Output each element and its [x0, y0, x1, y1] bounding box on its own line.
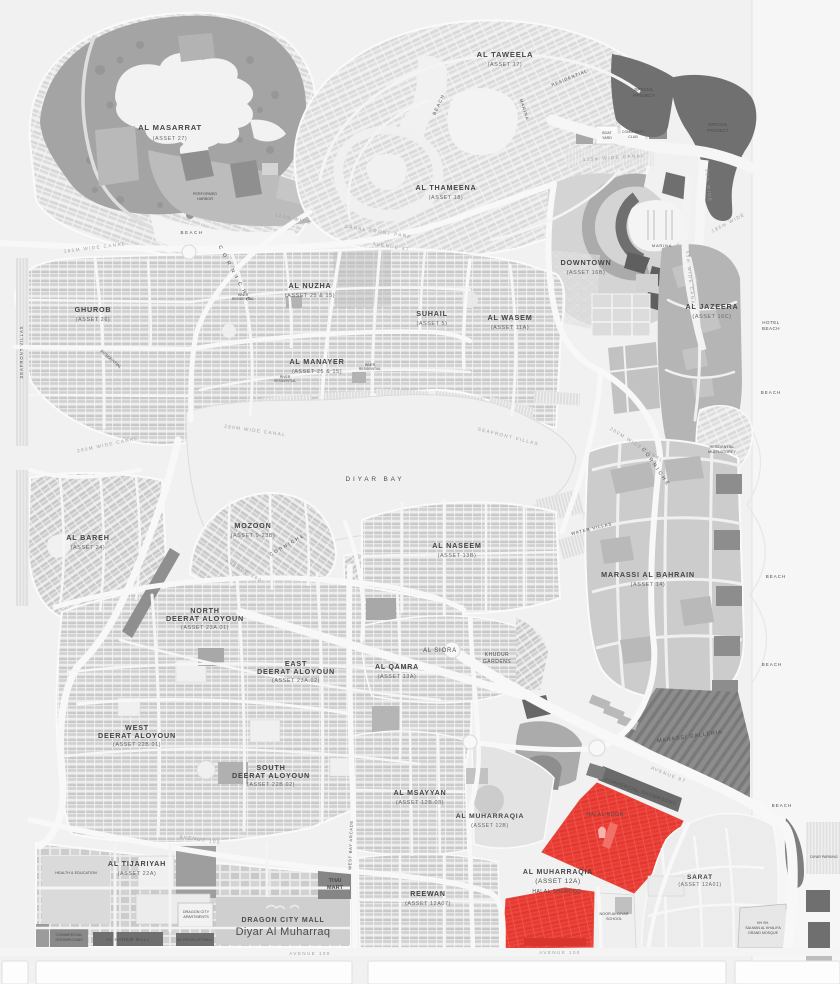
- svg-text:PROJECT: PROJECT: [633, 93, 655, 98]
- svg-text:MULTI-STOREY: MULTI-STOREY: [708, 450, 736, 454]
- svg-text:BEACH: BEACH: [766, 574, 787, 579]
- svg-text:AL MANAYER: AL MANAYER: [289, 357, 344, 366]
- svg-text:HOTEL: HOTEL: [762, 320, 780, 325]
- svg-text:AL MASARRAT: AL MASARRAT: [138, 123, 202, 132]
- svg-text:AL HAREM MALL: AL HAREM MALL: [106, 937, 150, 942]
- svg-text:(ASSET 18): (ASSET 18): [429, 195, 464, 201]
- svg-text:HH SH.: HH SH.: [757, 921, 769, 925]
- svg-text:COMMUNITY: COMMUNITY: [622, 130, 645, 134]
- svg-text:DIYAR BAY: DIYAR BAY: [346, 476, 405, 483]
- svg-text:PROJECT: PROJECT: [707, 128, 729, 133]
- svg-text:AL PEHALUP MALL: AL PEHALUP MALL: [177, 937, 214, 942]
- svg-text:HEALTH & EDUCATION: HEALTH & EDUCATION: [55, 871, 97, 875]
- svg-text:(ASSET 13B): (ASSET 13B): [438, 553, 477, 559]
- svg-text:SARAT: SARAT: [687, 874, 713, 881]
- svg-text:CLUB: CLUB: [628, 135, 638, 139]
- svg-text:AL MSAYYAN: AL MSAYYAN: [394, 790, 447, 797]
- svg-text:(ASSET 27): (ASSET 27): [153, 136, 188, 142]
- svg-text:SUHAIL: SUHAIL: [416, 309, 448, 318]
- svg-text:DRAGON CITY: DRAGON CITY: [183, 910, 210, 914]
- svg-text:THAI: THAI: [329, 878, 342, 884]
- svg-text:(ASSET 22B.02): (ASSET 22B.02): [247, 782, 295, 788]
- svg-text:(ASSET 12B): (ASSET 12B): [471, 823, 509, 829]
- svg-text:DEERAT ALOYOUN: DEERAT ALOYOUN: [98, 731, 176, 740]
- svg-text:REEWAN: REEWAN: [410, 891, 446, 898]
- svg-text:(ASSET 16C): (ASSET 16C): [692, 314, 731, 320]
- svg-text:MARINA: MARINA: [652, 243, 672, 248]
- svg-text:DEERAT ALOYOUN: DEERAT ALOYOUN: [166, 614, 244, 623]
- svg-text:AL THAMEENA: AL THAMEENA: [416, 183, 477, 192]
- svg-text:SCHOOL: SCHOOL: [606, 917, 622, 921]
- svg-text:(ASSET 17): (ASSET 17): [488, 62, 523, 68]
- svg-text:(ASSET 5): (ASSET 5): [416, 321, 447, 327]
- svg-text:SPECIAL: SPECIAL: [634, 87, 654, 92]
- svg-text:(ASSET 13A): (ASSET 13A): [378, 674, 417, 680]
- svg-text:AL BAREH: AL BAREH: [66, 533, 109, 542]
- svg-text:AL MUHARRAQIA: AL MUHARRAQIA: [456, 813, 524, 820]
- svg-text:AL QAMRA: AL QAMRA: [375, 664, 419, 671]
- svg-text:RESIDENTIAL: RESIDENTIAL: [274, 379, 296, 383]
- svg-text:BEACH: BEACH: [762, 662, 783, 667]
- svg-text:(ASSET 25 & 15): (ASSET 25 & 15): [285, 293, 335, 299]
- svg-text:(ASSET 12B.08): (ASSET 12B.08): [396, 800, 444, 806]
- svg-text:(ASSET 14): (ASSET 14): [631, 582, 666, 588]
- svg-text:DEERAT ALOYOUN: DEERAT ALOYOUN: [232, 771, 310, 780]
- svg-text:HAI AL SHEROOQ: HAI AL SHEROOQ: [532, 889, 581, 895]
- svg-text:(ASSET 12A07): (ASSET 12A07): [405, 901, 451, 907]
- svg-text:GRAND MOSQUE: GRAND MOSQUE: [748, 931, 779, 935]
- svg-text:BEACH: BEACH: [772, 803, 793, 808]
- svg-text:KHUDUR: KHUDUR: [485, 652, 509, 658]
- svg-text:(ASSET 23A.01): (ASSET 23A.01): [181, 625, 229, 631]
- svg-text:YARD: YARD: [602, 136, 612, 140]
- svg-text:MART: MART: [327, 885, 344, 891]
- svg-text:BEACH: BEACH: [180, 230, 203, 235]
- svg-text:DOWNTOWN: DOWNTOWN: [561, 258, 612, 267]
- svg-text:GARDENS: GARDENS: [483, 659, 511, 665]
- svg-text:(ASSET 24): (ASSET 24): [71, 545, 106, 551]
- svg-text:(ASSET 25 & 15): (ASSET 25 & 15): [292, 369, 342, 375]
- svg-text:(ASSET 22A): (ASSET 22A): [118, 871, 157, 877]
- svg-text:(ASSET 26): (ASSET 26): [76, 317, 111, 323]
- svg-text:(ASSET 23A.02): (ASSET 23A.02): [272, 678, 320, 684]
- svg-text:MARASSI AL BAHRAIN: MARASSI AL BAHRAIN: [601, 570, 695, 579]
- svg-text:BEACH: BEACH: [761, 390, 782, 395]
- svg-text:AL NASEEM: AL NASEEM: [432, 541, 481, 550]
- svg-text:(ASSET 9-23B): (ASSET 9-23B): [231, 533, 276, 539]
- svg-text:AL TIJARIYAH: AL TIJARIYAH: [108, 859, 166, 868]
- svg-text:AL NUZHA: AL NUZHA: [288, 281, 331, 290]
- svg-text:SPECIAL: SPECIAL: [708, 122, 728, 127]
- svg-text:RESIDENTIAL: RESIDENTIAL: [232, 297, 254, 301]
- svg-text:(ASSET 12A): (ASSET 12A): [535, 878, 581, 885]
- svg-text:AL TAWEELA: AL TAWEELA: [477, 50, 534, 59]
- svg-text:AL SIORA: AL SIORA: [423, 648, 457, 654]
- svg-text:AVENUE 100: AVENUE 100: [289, 951, 331, 956]
- svg-text:APARTMENTS: APARTMENTS: [183, 915, 209, 919]
- svg-text:(ASSET 16B): (ASSET 16B): [567, 270, 606, 276]
- svg-text:DIYAR PARKING: DIYAR PARKING: [810, 855, 838, 859]
- svg-text:AL MUHARRAQIA: AL MUHARRAQIA: [523, 869, 593, 876]
- svg-text:GHUROB: GHUROB: [75, 305, 112, 314]
- svg-text:DRAGON CITY MALL: DRAGON CITY MALL: [241, 917, 324, 924]
- svg-text:Diyar Al Muharraq: Diyar Al Muharraq: [236, 926, 331, 938]
- svg-text:DEERAT ALOYOUN: DEERAT ALOYOUN: [257, 667, 335, 676]
- svg-text:BOAT: BOAT: [602, 131, 612, 135]
- svg-text:(ASSET 12A01): (ASSET 12A01): [678, 882, 721, 888]
- svg-text:SHOWROOMS: SHOWROOMS: [55, 937, 83, 942]
- svg-text:RESIDENTIAL: RESIDENTIAL: [359, 367, 381, 371]
- svg-text:AL WASEM: AL WASEM: [487, 313, 532, 322]
- svg-text:HARBOR: HARBOR: [197, 197, 214, 201]
- svg-text:AVENUE 100: AVENUE 100: [539, 950, 581, 955]
- svg-text:(ASSET 11A): (ASSET 11A): [491, 325, 529, 331]
- svg-text:SEAFRONT VILLAS: SEAFRONT VILLAS: [19, 325, 24, 378]
- svg-text:MOZOON: MOZOON: [234, 521, 271, 530]
- svg-text:BEACH: BEACH: [762, 326, 780, 331]
- svg-text:HAI AL NOOR: HAI AL NOOR: [586, 812, 623, 818]
- svg-text:SALMAN AL KHALIFA: SALMAN AL KHALIFA: [745, 926, 781, 930]
- svg-text:NOOR AL DIYAR: NOOR AL DIYAR: [599, 912, 628, 916]
- svg-text:(ASSET 22B.01): (ASSET 22B.01): [113, 742, 161, 748]
- svg-text:RESIDENTIAL: RESIDENTIAL: [710, 445, 735, 449]
- svg-text:PERFORMED: PERFORMED: [193, 192, 218, 196]
